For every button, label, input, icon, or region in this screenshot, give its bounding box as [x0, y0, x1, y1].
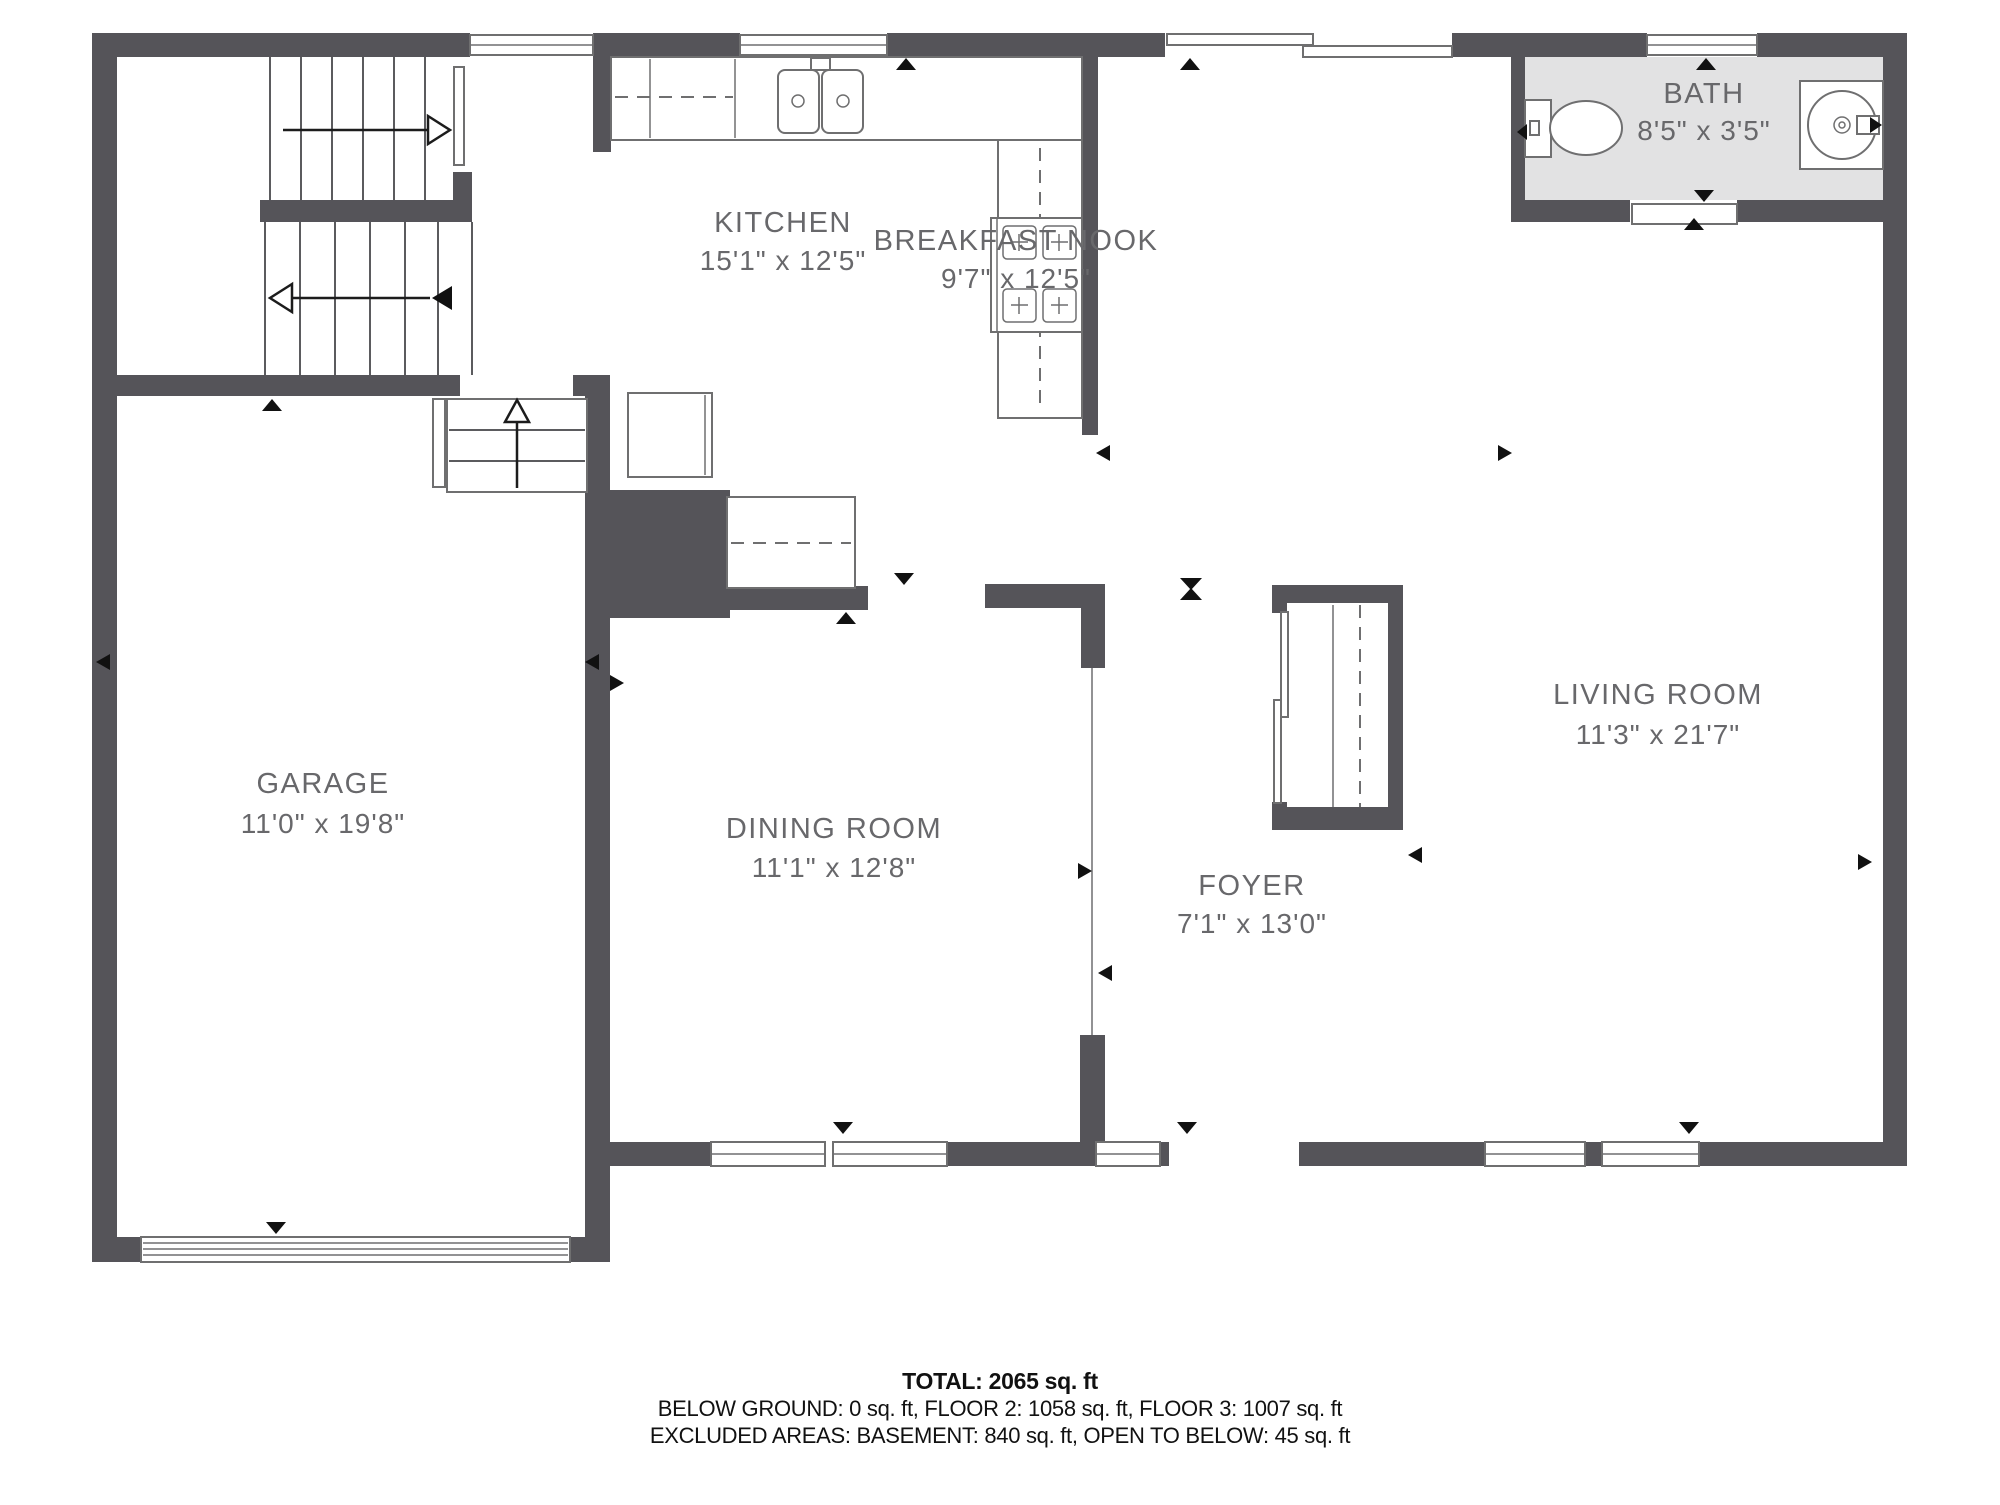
bath-door-leaf	[1632, 204, 1737, 224]
wall-top	[92, 33, 1907, 57]
kitchen-label: KITCHEN	[714, 207, 852, 239]
summary-excluded: EXCLUDED AREAS: BASEMENT: 840 sq. ft, OP…	[650, 1423, 1351, 1448]
breakfast-nook-label: BREAKFAST NOOK	[874, 225, 1159, 257]
wall-closet-stub-bottom	[1272, 802, 1287, 830]
wall-closet-right	[1388, 585, 1403, 830]
bath-dims: 8'5" x 3'5"	[1637, 115, 1770, 146]
toilet-fixture	[1525, 100, 1622, 157]
bath-window	[1647, 35, 1757, 55]
garage-steps	[433, 399, 587, 492]
wall-closet-top	[1272, 585, 1403, 603]
wall-dining-foyer-lower	[1080, 1035, 1105, 1142]
kitchen-sink-window	[740, 35, 887, 55]
breakfast-nook-dims: 9'7" x 12'5"	[941, 263, 1091, 294]
floor-plan: KITCHEN 15'1" x 12'5" BREAKFAST NOOK 9'7…	[0, 0, 2000, 1500]
wall-garage-top-left	[92, 375, 460, 396]
garage-steps-handrail	[433, 399, 445, 487]
living-room-label: LIVING ROOM	[1553, 679, 1763, 711]
living-room-dims: 11'3" x 21'7"	[1576, 719, 1740, 750]
summary-total: TOTAL: 2065 sq. ft	[902, 1368, 1098, 1394]
closet-sliding-panel-2	[1274, 700, 1281, 803]
garage-door	[141, 1237, 570, 1262]
dining-window-left	[711, 1142, 825, 1166]
dining-window-right	[833, 1142, 947, 1166]
floor-plan-page: KITCHEN 15'1" x 12'5" BREAKFAST NOOK 9'7…	[0, 0, 2000, 1500]
living-window-2	[1602, 1142, 1699, 1166]
wall-bath-left	[1511, 57, 1525, 222]
wall-garage-top-right	[573, 375, 610, 396]
wall-right	[1883, 33, 1907, 1166]
wall-stair-mid	[260, 200, 472, 222]
garage-dims: 11'0" x 19'8"	[241, 808, 405, 839]
fridge-fixture	[628, 393, 712, 477]
summary-floors: BELOW GROUND: 0 sq. ft, FLOOR 2: 1058 sq…	[658, 1396, 1343, 1421]
corner-cabinet	[727, 497, 855, 588]
wall-stair-kitchen-stub	[593, 57, 611, 152]
wall-left	[92, 33, 117, 1262]
dining-room-dims: 11'1" x 12'8"	[752, 852, 916, 883]
wall-dining-foyer-upper	[1081, 584, 1105, 668]
wall-closet-stub-top	[1272, 585, 1287, 613]
wall-kitchen-dining	[727, 586, 868, 610]
kitchen-dims: 15'1" x 12'5"	[700, 245, 867, 276]
foyer-label: FOYER	[1198, 870, 1305, 902]
bath-label: BATH	[1663, 78, 1744, 110]
dining-room-label: DINING ROOM	[726, 813, 942, 845]
foyer-dims: 7'1" x 13'0"	[1177, 908, 1327, 939]
living-window-1	[1485, 1142, 1585, 1166]
front-door-opening	[1169, 1142, 1299, 1166]
foyer-window	[1096, 1142, 1160, 1166]
stair-handrail	[454, 67, 464, 165]
stair-window	[470, 35, 593, 55]
wall-closet-bottom	[1272, 807, 1403, 830]
garage-label: GARAGE	[256, 768, 389, 800]
closet-sliding-panel-1	[1281, 612, 1288, 717]
wall-stair-landing-stub	[453, 172, 472, 222]
wall-kitchen-corner-block	[585, 490, 730, 618]
opening-garage-entry-door	[460, 375, 573, 396]
